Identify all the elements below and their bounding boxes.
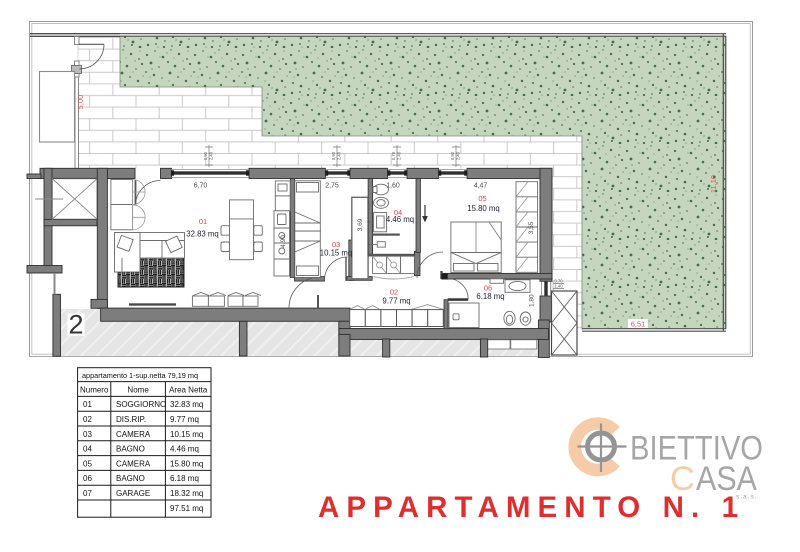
svg-text:02: 02 — [390, 288, 398, 297]
svg-text:6,51: 6,51 — [631, 320, 646, 329]
svg-text:2,40: 2,40 — [397, 151, 402, 160]
svg-text:Nome: Nome — [127, 385, 149, 394]
svg-text:DIS.RIP.: DIS.RIP. — [116, 415, 146, 424]
svg-text:3,55: 3,55 — [528, 221, 535, 234]
svg-text:0,70: 0,70 — [391, 151, 396, 160]
svg-text:10.15 mq: 10.15 mq — [170, 430, 203, 439]
svg-text:4.46 mq: 4.46 mq — [170, 445, 199, 454]
svg-text:2,40: 2,40 — [337, 151, 342, 160]
svg-text:03: 03 — [83, 430, 92, 439]
svg-text:BAGNO: BAGNO — [116, 445, 145, 454]
svg-text:2: 2 — [68, 310, 83, 340]
svg-text:07: 07 — [83, 489, 92, 498]
svg-text:06: 06 — [83, 474, 92, 483]
svg-text:32.83 mq: 32.83 mq — [170, 400, 203, 409]
svg-text:BAGNO: BAGNO — [116, 474, 145, 483]
svg-text:11,10: 11,10 — [709, 175, 718, 193]
svg-text:6,70: 6,70 — [194, 183, 208, 190]
svg-text:s.a.s.: s.a.s. — [736, 494, 758, 501]
svg-text:Numero: Numero — [80, 385, 109, 394]
svg-text:1,80: 1,80 — [529, 294, 536, 307]
svg-text:97.51 mq: 97.51 mq — [170, 504, 203, 513]
svg-text:APPARTAMENTO N. 1: APPARTAMENTO N. 1 — [318, 491, 738, 524]
svg-text:15.80 mq: 15.80 mq — [170, 459, 203, 468]
svg-text:0,90: 0,90 — [450, 151, 455, 160]
svg-text:02: 02 — [83, 415, 92, 424]
svg-text:10.15 mq: 10.15 mq — [320, 249, 353, 258]
svg-text:2,40: 2,40 — [209, 151, 214, 160]
svg-text:4,47: 4,47 — [474, 183, 488, 190]
svg-text:15.80 mq: 15.80 mq — [467, 204, 500, 213]
svg-text:appartamento 1-sup.netta 79,19: appartamento 1-sup.netta 79,19 mq — [82, 371, 198, 380]
svg-text:2,75: 2,75 — [325, 183, 339, 190]
svg-text:SOGGIORNO: SOGGIORNO — [116, 400, 166, 409]
svg-text:05: 05 — [478, 194, 486, 203]
svg-text:GARAGE: GARAGE — [116, 489, 150, 498]
svg-text:9.77 mq: 9.77 mq — [170, 415, 199, 424]
svg-text:6.18 mq: 6.18 mq — [476, 292, 504, 301]
svg-text:32.83 mq: 32.83 mq — [186, 230, 219, 239]
svg-text:01: 01 — [199, 217, 207, 226]
svg-text:9.77 mq: 9.77 mq — [382, 297, 410, 306]
svg-text:Area Netta: Area Netta — [169, 385, 208, 394]
svg-text:3,69: 3,69 — [357, 218, 364, 231]
svg-text:0,90: 0,90 — [331, 151, 336, 160]
svg-text:18.32 mq: 18.32 mq — [170, 489, 203, 498]
svg-text:CAMERA: CAMERA — [116, 430, 151, 439]
svg-text:0,90: 0,90 — [203, 151, 208, 160]
svg-text:1,40: 1,40 — [554, 284, 563, 289]
svg-text:04: 04 — [83, 445, 92, 454]
svg-text:05: 05 — [83, 459, 92, 468]
svg-text:1,60: 1,60 — [386, 183, 400, 190]
svg-text:01: 01 — [83, 400, 92, 409]
svg-text:4.46 mq: 4.46 mq — [386, 215, 414, 224]
svg-text:6.18 mq: 6.18 mq — [170, 474, 199, 483]
svg-text:4,90: 4,90 — [280, 235, 287, 248]
svg-text:CAMERA: CAMERA — [116, 459, 151, 468]
svg-text:5,00: 5,00 — [76, 95, 85, 110]
svg-text:2,40: 2,40 — [456, 151, 461, 160]
